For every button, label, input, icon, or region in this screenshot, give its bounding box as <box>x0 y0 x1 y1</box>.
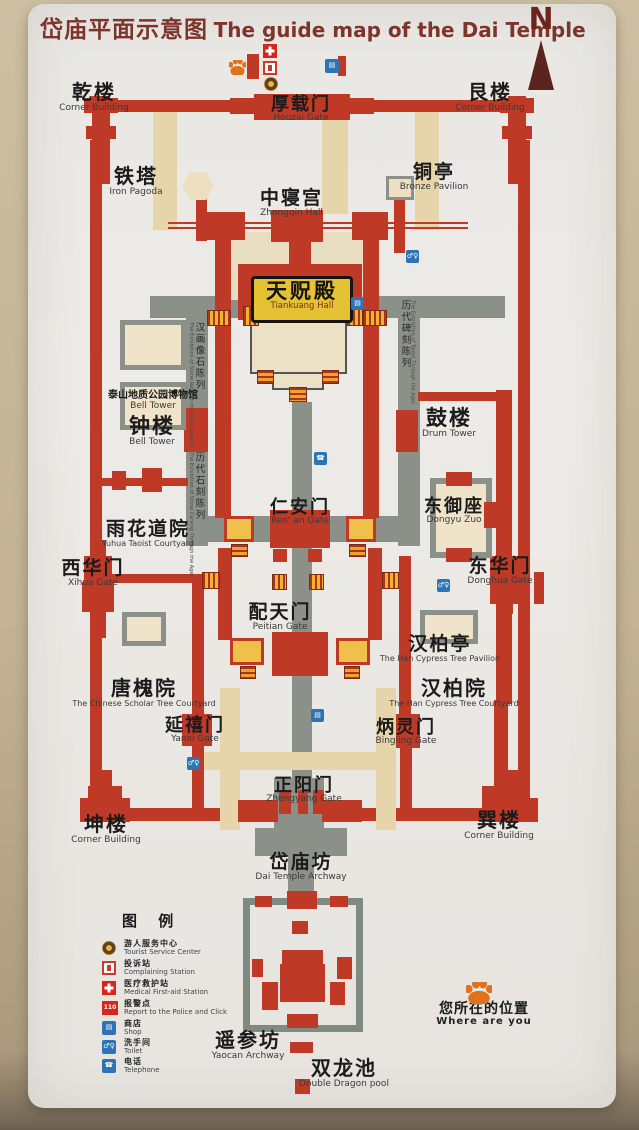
en: Drum Tower <box>404 430 494 440</box>
label-tanghuai: 唐槐院The Chinese Scholar Tree Courtyard <box>58 678 230 708</box>
label-peitian: 配天门Peitian Gate <box>236 602 324 632</box>
legend-item-complaining: 投诉站Complaining Station <box>124 960 264 976</box>
zh: 商店 <box>124 1020 264 1029</box>
en: Shop <box>124 1029 264 1037</box>
zh: 西华门 <box>50 558 136 579</box>
zh: 坤楼 <box>62 814 150 836</box>
zh: 汉柏院 <box>376 678 532 700</box>
en: Ren' an Gate <box>244 517 356 527</box>
zh: 东御座 <box>408 497 500 516</box>
label-yanxi: 延禧门Yanxi Gate <box>152 716 238 745</box>
peitian-wing-east <box>336 638 370 665</box>
steps-wall-west <box>207 310 231 326</box>
renan-square-2 <box>308 549 322 562</box>
yaocan-north-gate <box>287 891 317 909</box>
en: The Han Cypress Tree Courtyard <box>376 700 532 709</box>
zh: 洗手间 <box>124 1039 264 1048</box>
yaocan-east-block-1 <box>337 957 352 979</box>
en: Houzai Gate <box>256 114 346 124</box>
label-yuhua: 雨花道院Yuhua Taoist Courtyard <box>86 519 210 548</box>
en: Xihua Gate <box>50 579 136 589</box>
peitian-gate <box>272 632 328 676</box>
zh: 艮楼 <box>444 82 536 104</box>
legend-item-toilet: 洗手间Toilet <box>124 1039 264 1055</box>
en: Iron Pagoda <box>94 188 178 198</box>
phone-icon-center: ☎ <box>314 452 327 465</box>
path-cross-lower <box>204 752 396 770</box>
zh: 中寝宫 <box>244 188 339 209</box>
renan-square-1 <box>273 549 287 562</box>
zh: 铁塔 <box>94 166 178 188</box>
tieta-pagoda <box>182 172 214 200</box>
steps-hall-south <box>289 387 307 402</box>
label-tieta: 铁塔Iron Pagoda <box>94 166 178 197</box>
en: Corner Building <box>62 836 150 846</box>
west-cross-block-1 <box>112 471 126 490</box>
complaint-icon-top <box>263 61 277 75</box>
exhibition-right: 历代碑刻陈列 The Exhibition of Tablet Through … <box>400 300 416 405</box>
junction-steps-east <box>382 572 399 589</box>
zh: 唐槐院 <box>58 678 230 700</box>
paw-icon-you-are-here <box>466 982 492 1004</box>
label-kunlou: 坤楼Corner Building <box>62 814 150 845</box>
label-where-are-you: 您所在的位置Where are you <box>428 1002 540 1028</box>
legend-item-telephone: 电话Telephone <box>124 1058 264 1074</box>
tiankuang-stem-north <box>289 240 311 266</box>
zh: 厚载门 <box>256 95 346 114</box>
dongyuzuo-north-block <box>446 472 472 486</box>
legend-tourist-service-icon <box>102 941 116 955</box>
toilet-icon-yanxi: ♂♀ <box>187 757 200 770</box>
label-hanbaiyuan: 汉柏院The Han Cypress Tree Courtyard <box>376 678 532 708</box>
label-tongting: 铜亭Bronze Pavilion <box>396 162 472 192</box>
zh: 仁安门 <box>244 498 356 517</box>
zh: 炳灵门 <box>364 718 448 737</box>
inner-east-wall-upper <box>496 390 512 558</box>
yaocan-east-block-2 <box>330 982 345 1005</box>
toilet-icon-ne: ♂♀ <box>406 250 419 263</box>
legend-medical-icon <box>102 981 116 995</box>
en: Bingling Gate <box>364 737 448 747</box>
tiankuang-hall-body <box>250 320 347 374</box>
legend-item-shop: 商店Shop <box>124 1020 264 1036</box>
steps-hall-sw <box>257 370 274 384</box>
path-steps-1 <box>272 574 287 590</box>
tieta-stem <box>196 197 207 241</box>
en: Telephone <box>124 1067 264 1075</box>
peitian-wing-west <box>230 638 264 665</box>
wall-east <box>518 140 530 820</box>
yuhua-building <box>122 612 166 646</box>
en: Double Dragon pool <box>296 1080 392 1090</box>
en: Yuhua Taoist Courtyard <box>86 540 210 549</box>
label-museum: 泰山地质公园博物馆Bell Tower <box>100 391 206 412</box>
zh: 鼓楼 <box>404 407 494 430</box>
legend-toilet-icon: ♂♀ <box>102 1040 116 1054</box>
compass-n-label: N <box>524 2 558 37</box>
en: Bell Tower <box>108 438 196 448</box>
legend-item-police: 报警点Report to the Police and Click <box>124 1000 264 1016</box>
en: Where are you <box>428 1017 540 1028</box>
renan-steps-east <box>349 544 366 557</box>
zh: 钟楼 <box>108 415 196 438</box>
label-genlou: 艮楼Corner Building <box>444 82 536 113</box>
en: Medical First-aid Station <box>124 989 264 997</box>
yaocan-nw-block <box>255 896 272 907</box>
zh: 巽楼 <box>454 810 544 832</box>
en: Dongyu Zuo <box>408 516 500 526</box>
zh: 您所在的位置 <box>428 1002 540 1017</box>
legend-shop-icon: ▤ <box>102 1021 116 1035</box>
peitian-steps-east <box>344 666 360 679</box>
red-marker-top <box>247 54 259 79</box>
en: Dai Temple Archway <box>246 873 356 883</box>
steps-wall-east <box>363 310 387 326</box>
zh: 汉柏亭 <box>378 634 502 655</box>
legend-item-tourist-service: 游人服务中心Tourist Service Center <box>124 940 264 956</box>
en: Complaining Station <box>124 969 264 977</box>
zh: 延禧门 <box>152 716 238 735</box>
zh: 乾楼 <box>52 82 136 104</box>
zh: 历代石刻陈列 <box>194 452 204 577</box>
junction-steps-west <box>202 572 220 589</box>
peitian-steps-west <box>240 666 256 679</box>
legend-complaint-icon <box>102 961 116 975</box>
paw-icon-top <box>229 60 246 75</box>
label-zhengyang: 正阳门Zhengyang Gate <box>258 776 350 805</box>
en: Corner Building <box>454 832 544 842</box>
zh: 配天门 <box>236 602 324 623</box>
shop-marker-top <box>338 56 346 76</box>
en: Donghua Gate <box>456 577 544 587</box>
en: Corner Building <box>52 104 136 114</box>
label-shuanglongchi: 双龙池Double Dragon pool <box>296 1058 392 1089</box>
map-title-zh: 岱庙平面示意图 <box>40 17 208 43</box>
yaocan-south-gate <box>287 1014 318 1028</box>
houzai-wing-west <box>230 98 254 114</box>
label-bingling: 炳灵门Bingling Gate <box>364 718 448 747</box>
exhibition-left-lower: The Exhibition of Stone Carving Through … <box>188 452 204 577</box>
en: Tourist Service Center <box>124 949 264 957</box>
west-cross-block-2 <box>142 468 162 492</box>
en: The Chinese Scholar Tree Courtyard <box>58 700 230 709</box>
label-donghua: 东华门Donghua Gate <box>456 556 544 586</box>
en: Bronze Pavilion <box>396 183 472 193</box>
label-renan: 仁安门Ren' an Gate <box>244 498 356 527</box>
label-qianlou: 乾楼Corner Building <box>52 82 136 113</box>
zh: 东华门 <box>456 556 544 577</box>
en: Bell Tower <box>100 402 206 412</box>
en: Zhengyang Gate <box>258 795 350 805</box>
en: Yanxi Gate <box>152 735 238 745</box>
genlou-crossbar-2 <box>502 126 532 139</box>
label-zhongqin: 中寝宫Zhongqin Hall <box>244 188 339 218</box>
steps-hall-se <box>322 370 339 384</box>
tourist-service-icon-top <box>264 77 278 91</box>
path-steps-2 <box>309 574 324 590</box>
zh: 岱庙坊 <box>246 852 356 873</box>
zh: 雨花道院 <box>86 519 210 540</box>
label-daimiaofang: 岱庙坊Dai Temple Archway <box>246 852 356 882</box>
compass-arrow-icon <box>528 40 554 90</box>
inner-wall-east-north <box>363 232 379 518</box>
houzai-wing-east <box>350 98 374 114</box>
label-zhonglou: 钟楼Bell Tower <box>108 415 196 447</box>
shop-icon-south: ▤ <box>311 709 324 722</box>
label-dongyuzuo: 东御座Dongyu Zuo <box>408 497 500 526</box>
label-gulou: 鼓楼Drum Tower <box>404 407 494 439</box>
zh: 双龙池 <box>296 1058 392 1080</box>
medical-icon-top <box>263 44 277 58</box>
west-building-upper <box>120 320 186 370</box>
legend-police-icon: 110 <box>102 1001 118 1015</box>
en: The Han Cypress Tree Pavilion <box>378 655 502 664</box>
zh: 正阳门 <box>258 776 350 795</box>
renan-steps-west <box>231 544 248 557</box>
zh: 铜亭 <box>396 162 472 183</box>
toilet-icon-donghua: ♂♀ <box>437 579 450 592</box>
yaocan-small-block <box>292 921 308 934</box>
tiankuang-sign: 天贶殿 Tiankuang Hall <box>251 276 353 323</box>
en: Zhongqin Hall <box>244 209 339 219</box>
label-xunlou: 巽楼Corner Building <box>454 810 544 841</box>
qianlou-crossbar-2 <box>86 126 116 139</box>
en: The Exhibition of Tablet Through the Age… <box>410 300 416 405</box>
en: Toilet <box>124 1048 264 1056</box>
legend-item-medical: 医疗救护站Medical First-aid Station <box>124 980 264 996</box>
inner-wall-west-mid <box>218 548 232 640</box>
temple-map: ▤ ♂♀ ▤ ☎ ♂♀ ▤ ♂♀ 天贶殿 Tiankuang Hall The … <box>0 0 639 1130</box>
label-hanbaiting: 汉柏亭The Han Cypress Tree Pavilion <box>378 634 502 663</box>
shop-icon-hall: ▤ <box>351 297 364 310</box>
en: Report to the Police and Click <box>124 1009 264 1017</box>
bingling-south-wall <box>400 748 412 810</box>
label-houzai: 厚载门Houzai Gate <box>256 95 346 124</box>
tongting-stem <box>394 199 405 253</box>
yaocan-west-block-2 <box>262 982 278 1010</box>
legend-telephone-icon: ☎ <box>102 1059 116 1073</box>
legend-title: 图 例 <box>122 910 181 931</box>
map-title: 岱庙平面示意图 The guide map of the Dai Temple <box>40 10 530 44</box>
shop-icon-top: ▤ <box>325 59 339 73</box>
east-cross-wall <box>418 392 498 401</box>
inner-wall-east-mid <box>368 548 382 640</box>
yaocan-ne-block <box>330 896 348 907</box>
en: Corner Building <box>444 104 536 114</box>
inner-wall-west-north <box>215 232 231 518</box>
yaocan-hall-lower <box>280 964 325 1002</box>
zh: 历代碑刻陈列 <box>400 300 410 405</box>
xihua-tower-4 <box>90 610 106 638</box>
label-xihua: 西华门Xihua Gate <box>50 558 136 588</box>
en: Peitian Gate <box>236 623 324 633</box>
